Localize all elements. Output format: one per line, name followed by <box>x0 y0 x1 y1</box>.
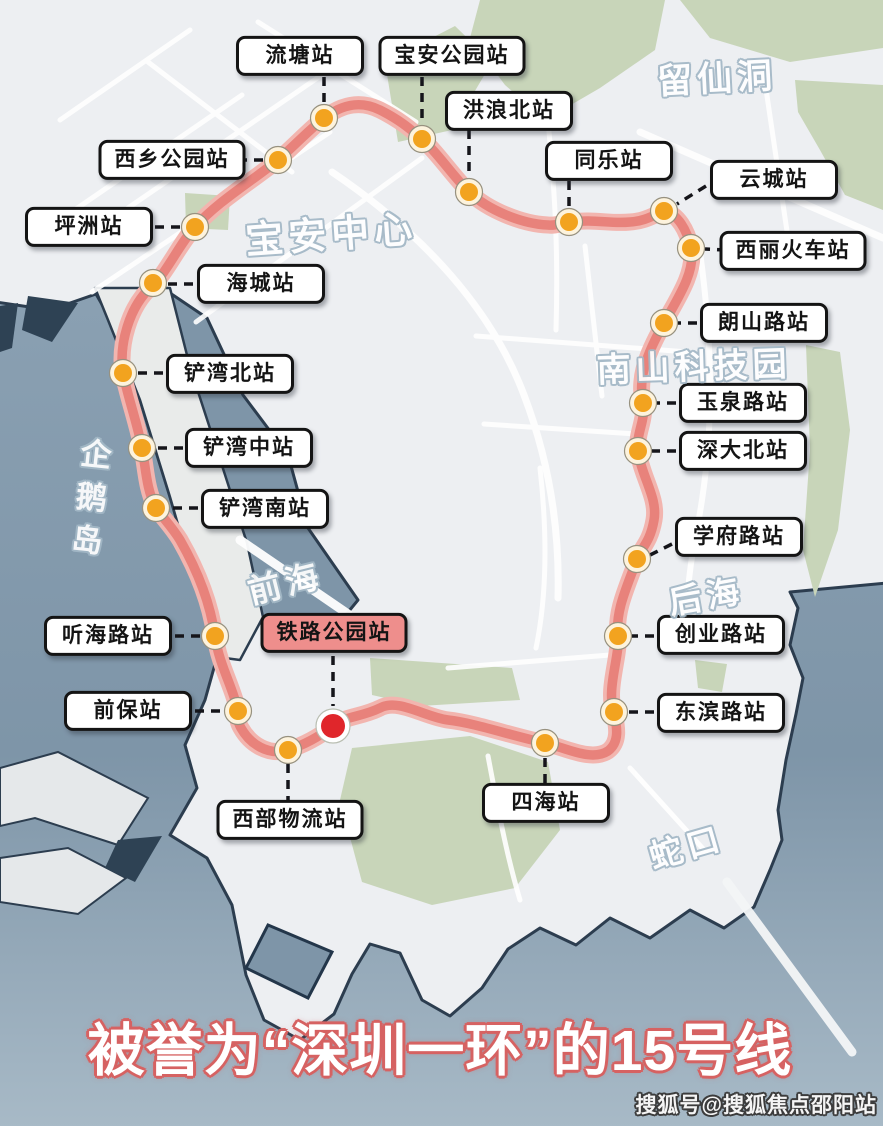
area-label: 留仙洞 <box>656 47 779 104</box>
area-label: 蛇口 <box>643 811 729 878</box>
metro-line15-map: 流塘站宝安公园站洪浪北站同乐站云城站西丽火车站朗山路站玉泉路站深大北站学府路站创… <box>0 0 883 1126</box>
station-label: 西丽火车站 <box>720 231 867 271</box>
station-label: 坪洲站 <box>25 207 153 247</box>
station-label: 学府路站 <box>675 517 803 557</box>
station-label: 铲湾中站 <box>185 428 313 468</box>
station-label: 西部物流站 <box>217 800 364 840</box>
station-label: 铲湾北站 <box>166 354 294 394</box>
station-label: 东滨路站 <box>657 693 785 733</box>
station-label: 西乡公园站 <box>99 140 246 180</box>
station-label: 云城站 <box>710 160 838 200</box>
station-label: 宝安公园站 <box>379 36 526 76</box>
station-label: 玉泉路站 <box>679 383 807 423</box>
station-label: 前保站 <box>64 691 192 731</box>
map-title: 被誉为“深圳一环”的15号线 <box>88 1005 792 1087</box>
station-label: 海城站 <box>197 264 325 304</box>
station-label: 铲湾南站 <box>201 489 329 529</box>
station-label: 听海路站 <box>44 616 172 656</box>
station-labels-layer: 流塘站宝安公园站洪浪北站同乐站云城站西丽火车站朗山路站玉泉路站深大北站学府路站创… <box>0 0 883 1126</box>
area-label: 企鹅岛 <box>59 436 117 569</box>
station-label: 洪浪北站 <box>445 91 573 131</box>
station-label: 流塘站 <box>236 36 364 76</box>
area-label: 前海 <box>242 549 327 614</box>
station-label: 四海站 <box>482 783 610 823</box>
station-label: 同乐站 <box>545 141 673 181</box>
watermark: 搜狐号@搜狐焦点邵阳站 <box>636 1089 877 1119</box>
area-label: 宝安中心 <box>243 198 418 265</box>
station-label-highlight: 铁路公园站 <box>261 613 408 653</box>
area-label: 南山科技园 <box>596 336 793 392</box>
station-label: 深大北站 <box>679 431 807 471</box>
